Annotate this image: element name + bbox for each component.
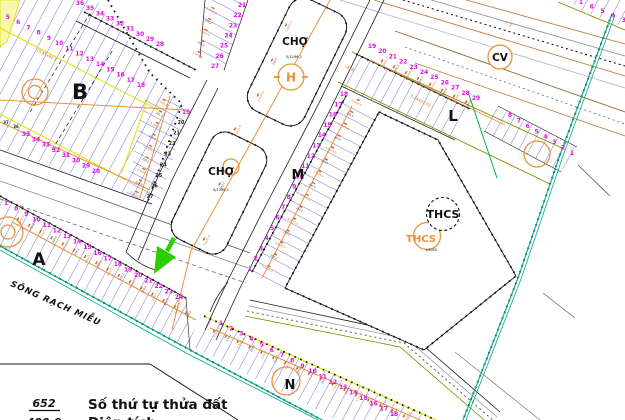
lot-number: 29 xyxy=(82,163,90,170)
lot-number: 20 xyxy=(134,272,142,279)
legend-label: Số thứ tự thửa đất xyxy=(88,396,228,413)
lot-number: 17 xyxy=(127,77,135,84)
lot-number: 2 xyxy=(561,145,565,152)
lot-number: 17 xyxy=(334,101,342,108)
lot-number: 25 xyxy=(220,43,228,50)
lot-number: 12 xyxy=(75,51,83,58)
lot-number: 4 xyxy=(611,13,615,20)
lot-number: 28 xyxy=(92,168,100,175)
lot-number: 24 xyxy=(420,69,428,76)
school-label: THCS xyxy=(427,208,460,221)
lot-number: 26 xyxy=(151,183,158,189)
lot-number: 9 xyxy=(300,363,304,370)
block-b-label: B xyxy=(72,80,88,104)
lot-number: 15 xyxy=(323,122,331,129)
lot-number: 4 xyxy=(249,336,253,343)
lot-number: 23 xyxy=(164,152,171,158)
lot-number: 3 xyxy=(552,139,556,146)
location-marker-arrow-icon[interactable] xyxy=(154,238,176,274)
lot-number: 6 xyxy=(590,4,594,11)
lot-number: 29 xyxy=(472,95,480,102)
block-a-label: A xyxy=(32,250,46,270)
market-block-2 xyxy=(166,127,272,259)
lot-number: 1 xyxy=(570,150,574,157)
lot-number: 29 xyxy=(146,36,154,43)
lot-number: 15 xyxy=(106,66,114,73)
legend-code-2: 400.0 xyxy=(26,416,62,420)
lot-number: 26 xyxy=(215,53,223,60)
svg-text:250.0: 250.0 xyxy=(417,75,424,84)
market-1-label: CHỢ xyxy=(282,36,308,48)
helipad-label: H xyxy=(286,71,296,85)
lot-number: 8 xyxy=(37,30,41,37)
lot-number: 37 xyxy=(3,120,9,125)
lot-number: 13 xyxy=(63,233,71,240)
lot-number: 4 xyxy=(264,235,268,242)
lot-number: 6 xyxy=(276,215,280,222)
lot-number: 19 xyxy=(182,109,190,116)
lot-number: 30 xyxy=(136,31,144,38)
lot-number: 16 xyxy=(93,250,101,257)
lot-number: 14 xyxy=(349,390,357,397)
lot-number: 7 xyxy=(281,204,285,211)
lot-number: 22 xyxy=(233,12,241,19)
lot-number: 1 xyxy=(219,320,223,327)
lot-number: 11 xyxy=(319,374,327,381)
lot-number: 28 xyxy=(156,41,164,48)
lot-number: 32 xyxy=(116,21,124,28)
lot-number: 11 xyxy=(43,222,51,229)
lot-number: 2 xyxy=(229,325,233,332)
lot-number: 18 xyxy=(340,91,348,98)
block-n-label: N xyxy=(285,378,296,393)
lot-number: 10 xyxy=(308,368,316,375)
lot-number: 9 xyxy=(24,211,28,218)
lot-number: 16 xyxy=(369,400,377,407)
lot-number: 17 xyxy=(104,255,112,262)
lot-number: 11 xyxy=(65,45,73,52)
lot-number: 14 xyxy=(318,132,326,139)
lot-number: 21 xyxy=(238,2,246,9)
lot-number: 14 xyxy=(96,61,104,68)
lot-number: 7 xyxy=(280,352,284,359)
block-l2-lots xyxy=(484,106,577,172)
lot-number: 8 xyxy=(14,206,18,213)
market-1-area: 5/1196.1 xyxy=(286,55,302,59)
school-orange-label: THCS xyxy=(406,234,436,245)
lot-number: 6 xyxy=(16,19,20,26)
lot-number: 23 xyxy=(409,64,417,71)
lot-number: 13 xyxy=(312,142,320,149)
lot-number: 18 xyxy=(390,411,398,418)
legend: 652 Số thứ tự thửa đất 400.0 Diện tích xyxy=(26,396,228,420)
market-2-label: CHỢ xyxy=(208,166,234,178)
lot-number: 21 xyxy=(173,131,180,137)
lot-number: 20 xyxy=(378,48,386,55)
lot-number: 26 xyxy=(441,79,449,86)
lot-number: 25 xyxy=(430,74,438,81)
lot-number: 35 xyxy=(86,5,94,12)
lot-number: 8 xyxy=(290,357,294,364)
lot-number: 24 xyxy=(175,294,183,301)
lot-number: 3 xyxy=(239,331,243,338)
lot-number: 33 xyxy=(106,15,114,22)
lot-number: 35 xyxy=(22,131,30,138)
lot-number: 9 xyxy=(47,35,51,42)
lot-number: 27 xyxy=(147,194,154,200)
lot-number: 34 xyxy=(96,10,104,17)
lot-number: 8 xyxy=(508,112,512,119)
lot-number: 28 xyxy=(461,90,469,97)
lot-number: 24 xyxy=(224,33,232,40)
lot-number: 24 xyxy=(160,162,167,168)
park-label: CV xyxy=(492,52,509,64)
lot-number: 1 xyxy=(579,0,583,6)
lot-number: 5 xyxy=(6,14,10,21)
lot-number: 36 xyxy=(76,0,84,7)
lot-number: 7 xyxy=(517,117,521,124)
lot-number: 6 xyxy=(526,123,530,130)
school-area: 1/4043 xyxy=(425,248,437,252)
market-2-area: 4/1396.1 xyxy=(213,188,229,192)
lot-number: 10 xyxy=(55,40,63,47)
lot-number: 2 xyxy=(253,256,257,263)
svg-text:255.2: 255.2 xyxy=(441,87,448,96)
lot-number: 33 xyxy=(42,142,50,149)
block-m-label: M xyxy=(292,168,305,183)
cadastral-map-canvas[interactable]: 5.0x25.0255.25.0x25.0250.05.0x25.0255.25… xyxy=(0,0,625,420)
map-drawing: 5.0x25.0255.25.0x25.0250.05.0x25.0255.25… xyxy=(0,0,625,420)
lot-number: 5 xyxy=(534,128,538,135)
lot-number: 10 xyxy=(32,217,40,224)
lot-number: 12 xyxy=(329,379,337,386)
lot-number: 31 xyxy=(62,152,70,159)
lot-number: 12 xyxy=(307,153,315,160)
lot-number: 27 xyxy=(451,85,459,92)
lot-number: 5 xyxy=(260,341,264,348)
lot-number: 4 xyxy=(543,134,547,141)
lot-number: 15 xyxy=(359,395,367,402)
lot-number: 13 xyxy=(339,384,347,391)
lot-number: 16 xyxy=(329,112,337,119)
lot-number: 14 xyxy=(73,239,81,246)
lot-number: 31 xyxy=(126,26,134,33)
lot-number: 9 xyxy=(292,184,296,191)
lot-number: 17 xyxy=(380,406,388,413)
lot-number: 8 xyxy=(287,194,291,201)
lot-number: 5 xyxy=(270,225,274,232)
lot-number: 3 xyxy=(259,245,263,252)
lot-number: 6 xyxy=(270,347,274,354)
legend-code: 652 xyxy=(33,397,56,410)
lot-number: 30 xyxy=(72,157,80,164)
lot-number: 20 xyxy=(178,120,185,126)
lot-number: 1 xyxy=(4,200,8,207)
lot-number: 1 xyxy=(248,266,252,273)
lot-number: 23 xyxy=(165,288,173,295)
lot-number: 15 xyxy=(83,244,91,251)
lot-number: 21 xyxy=(389,53,397,60)
lot-number: 12 xyxy=(53,228,61,235)
lot-number: 25 xyxy=(156,173,163,179)
lot-number: 21 xyxy=(144,277,152,284)
lot-number: 19 xyxy=(368,43,376,50)
top-right-lots xyxy=(568,0,625,28)
lot-number: 7 xyxy=(26,24,30,31)
lot-number: 23 xyxy=(229,22,237,29)
lot-number: 19 xyxy=(124,266,132,273)
lot-number: 22 xyxy=(154,283,162,290)
legend-label-2: Diện tích xyxy=(88,415,156,420)
dim-label-blvd: 7.5 xyxy=(504,20,513,28)
lot-number: 22 xyxy=(399,59,407,66)
lot-number: 32 xyxy=(52,147,60,154)
lot-number: 5 xyxy=(600,8,604,15)
lot-number: 13 xyxy=(86,56,94,63)
block-l-label: L xyxy=(448,107,458,125)
lot-number: 27 xyxy=(211,63,219,70)
lot-number: 34 xyxy=(32,136,40,143)
lot-number: 18 xyxy=(114,261,122,268)
lot-number: 22 xyxy=(169,141,176,147)
lot-number: 36 xyxy=(13,124,19,129)
lot-number: 16 xyxy=(116,72,124,79)
lot-number: 18 xyxy=(137,82,145,89)
